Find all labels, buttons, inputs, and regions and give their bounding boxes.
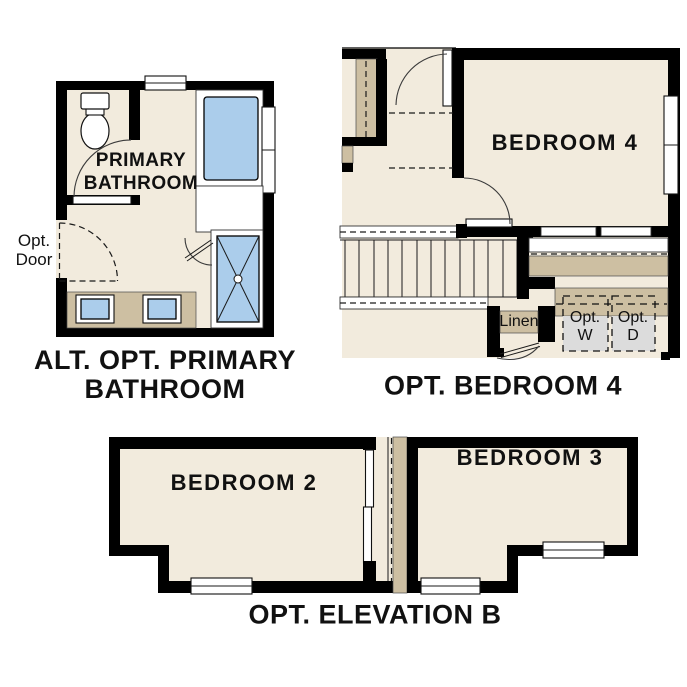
opt-door-label: Opt. Door: [16, 231, 53, 269]
bathroom-plan-title: ALT. OPT. PRIMARY BATHROOM: [34, 346, 296, 404]
bedroom3-label: BEDROOM 3: [457, 446, 604, 470]
cased-opening: [601, 227, 651, 236]
opt-washer-label: Opt. W: [570, 309, 600, 345]
window: [421, 578, 480, 594]
cased-opening: [541, 227, 596, 236]
elevation-plan-title: OPT. ELEVATION B: [248, 601, 501, 630]
bedroom2-label: BEDROOM 2: [171, 471, 318, 495]
bathroom-plan: [56, 76, 275, 337]
bedroom4-label: BEDROOM 4: [492, 131, 639, 155]
vanity-counter: [67, 292, 196, 328]
tub-deck: [196, 186, 263, 232]
bedroom4-plan-title: OPT. BEDROOM 4: [384, 372, 622, 401]
bathtub: [196, 90, 263, 186]
opt-dryer-label: Opt. D: [618, 309, 648, 345]
window: [543, 542, 604, 558]
window: [145, 76, 186, 90]
floorplan-sheet: PRIMARY BATHROOM Opt. Door ALT. OPT. PRI…: [0, 0, 687, 687]
toilet: [81, 93, 109, 149]
window: [664, 96, 678, 194]
linen-label: Linen: [499, 313, 538, 331]
closet-shelf: [529, 238, 668, 276]
primary-bathroom-label: PRIMARY BATHROOM: [84, 149, 198, 195]
sink: [143, 295, 181, 323]
window: [262, 107, 275, 193]
window: [191, 578, 252, 594]
sink: [76, 295, 114, 323]
